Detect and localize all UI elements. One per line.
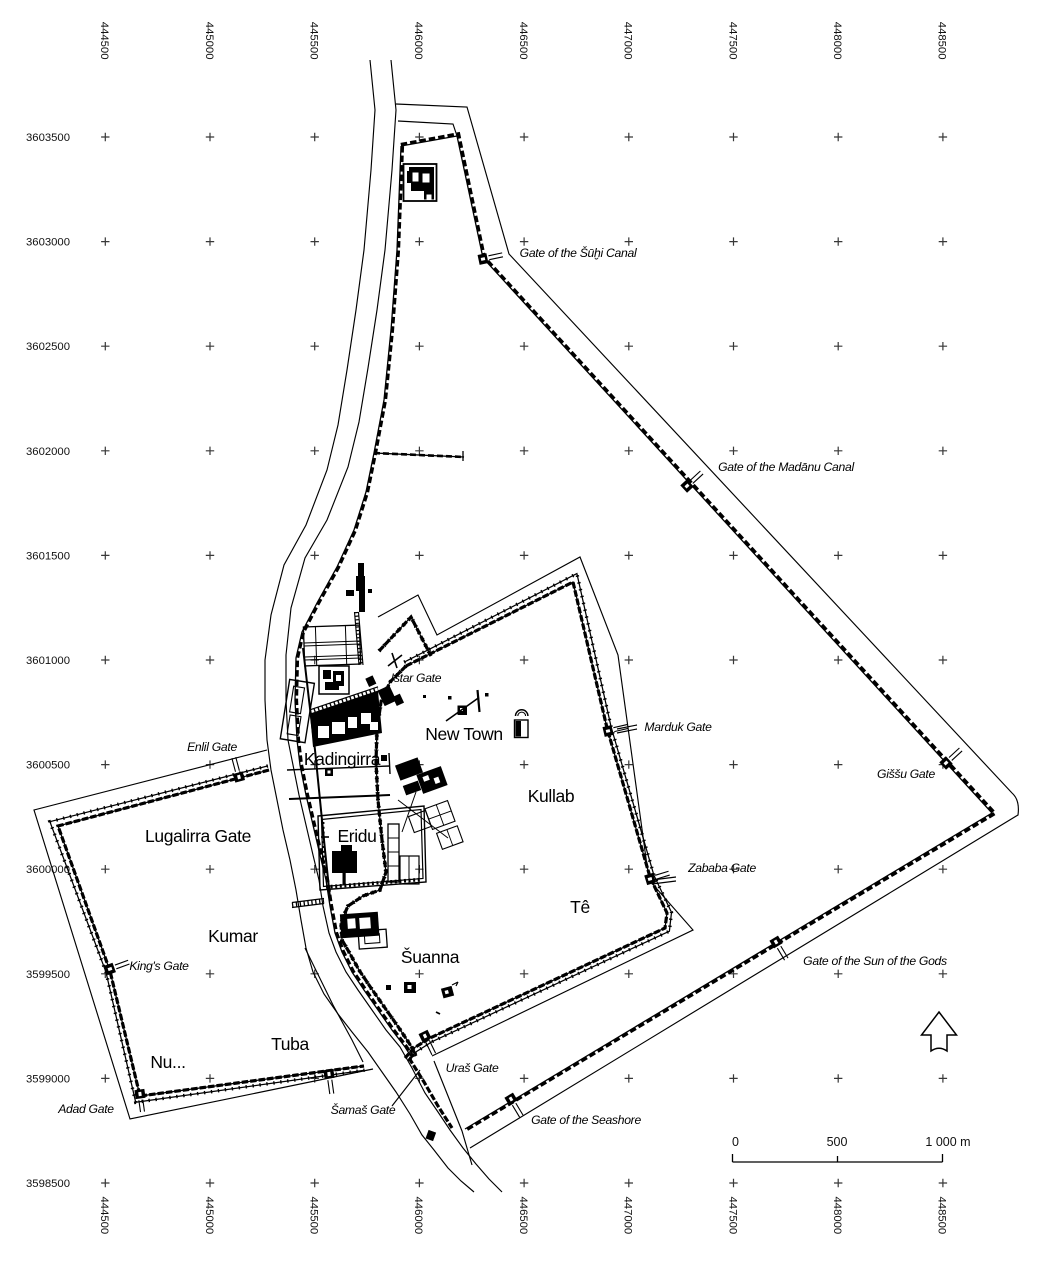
svg-text:King's Gate: King's Gate [129, 959, 189, 973]
svg-text:3599000: 3599000 [26, 1073, 70, 1085]
svg-text:3602500: 3602500 [26, 341, 70, 353]
svg-text:Tê: Tê [570, 897, 590, 917]
svg-text:0: 0 [732, 1135, 739, 1149]
svg-text:3602000: 3602000 [26, 446, 70, 458]
svg-text:445500: 445500 [308, 1197, 320, 1235]
svg-text:446000: 446000 [412, 1197, 424, 1235]
svg-text:Gate of the Seashore: Gate of the Seashore [531, 1113, 641, 1127]
svg-text:Kadingirra: Kadingirra [304, 749, 381, 769]
svg-text:Adad Gate: Adad Gate [57, 1102, 114, 1116]
svg-text:Zababa Gate: Zababa Gate [687, 861, 756, 875]
svg-text:444500: 444500 [98, 1197, 110, 1235]
svg-text:Gate of the Šūḫi Canal: Gate of the Šūḫi Canal [520, 245, 637, 260]
svg-text:447000: 447000 [622, 22, 634, 60]
svg-text:Nu...: Nu... [150, 1052, 185, 1072]
svg-text:448000: 448000 [831, 22, 843, 60]
svg-text:3600500: 3600500 [26, 760, 70, 772]
svg-text:1 000 m: 1 000 m [925, 1135, 970, 1149]
svg-text:444500: 444500 [98, 22, 110, 60]
svg-text:3598500: 3598500 [26, 1178, 70, 1190]
svg-text:447500: 447500 [726, 1197, 738, 1235]
svg-text:3603000: 3603000 [26, 237, 70, 249]
svg-text:Gate of the Sun of the Gods: Gate of the Sun of the Gods [803, 954, 947, 968]
svg-text:448500: 448500 [936, 22, 948, 60]
svg-text:Enlil Gate: Enlil Gate [187, 740, 237, 754]
svg-text:Kumar: Kumar [208, 926, 258, 946]
svg-text:445000: 445000 [203, 22, 215, 60]
svg-text:Eridu: Eridu [337, 826, 376, 846]
svg-text:Uraš Gate: Uraš Gate [446, 1061, 499, 1075]
svg-text:New Town: New Town [425, 724, 503, 744]
svg-text:Kullab: Kullab [528, 786, 575, 806]
svg-text:448000: 448000 [831, 1197, 843, 1235]
svg-text:446000: 446000 [412, 22, 424, 60]
svg-text:445500: 445500 [308, 22, 320, 60]
svg-text:446500: 446500 [517, 1197, 529, 1235]
svg-text:Tuba: Tuba [271, 1034, 309, 1054]
svg-text:Gate of the Madānu Canal: Gate of the Madānu Canal [718, 460, 854, 474]
svg-text:Šuanna: Šuanna [401, 946, 460, 967]
svg-text:500: 500 [827, 1135, 848, 1149]
svg-text:445000: 445000 [203, 1197, 215, 1235]
svg-text:448500: 448500 [936, 1197, 948, 1235]
svg-text:Marduk Gate: Marduk Gate [644, 720, 712, 734]
svg-text:Šamaš Gate: Šamaš Gate [331, 1102, 396, 1117]
svg-text:3600000: 3600000 [26, 864, 70, 876]
svg-text:446500: 446500 [517, 22, 529, 60]
svg-text:3599500: 3599500 [26, 969, 70, 981]
svg-text:Lugalirra Gate: Lugalirra Gate [145, 826, 251, 846]
svg-text:Giššu Gate: Giššu Gate [877, 767, 935, 781]
svg-text:447000: 447000 [622, 1197, 634, 1235]
svg-text:3601000: 3601000 [26, 655, 70, 667]
svg-text:3601500: 3601500 [26, 550, 70, 562]
svg-text:Ištar Gate: Ištar Gate [391, 671, 442, 685]
svg-text:3603500: 3603500 [26, 132, 70, 144]
svg-text:447500: 447500 [726, 22, 738, 60]
